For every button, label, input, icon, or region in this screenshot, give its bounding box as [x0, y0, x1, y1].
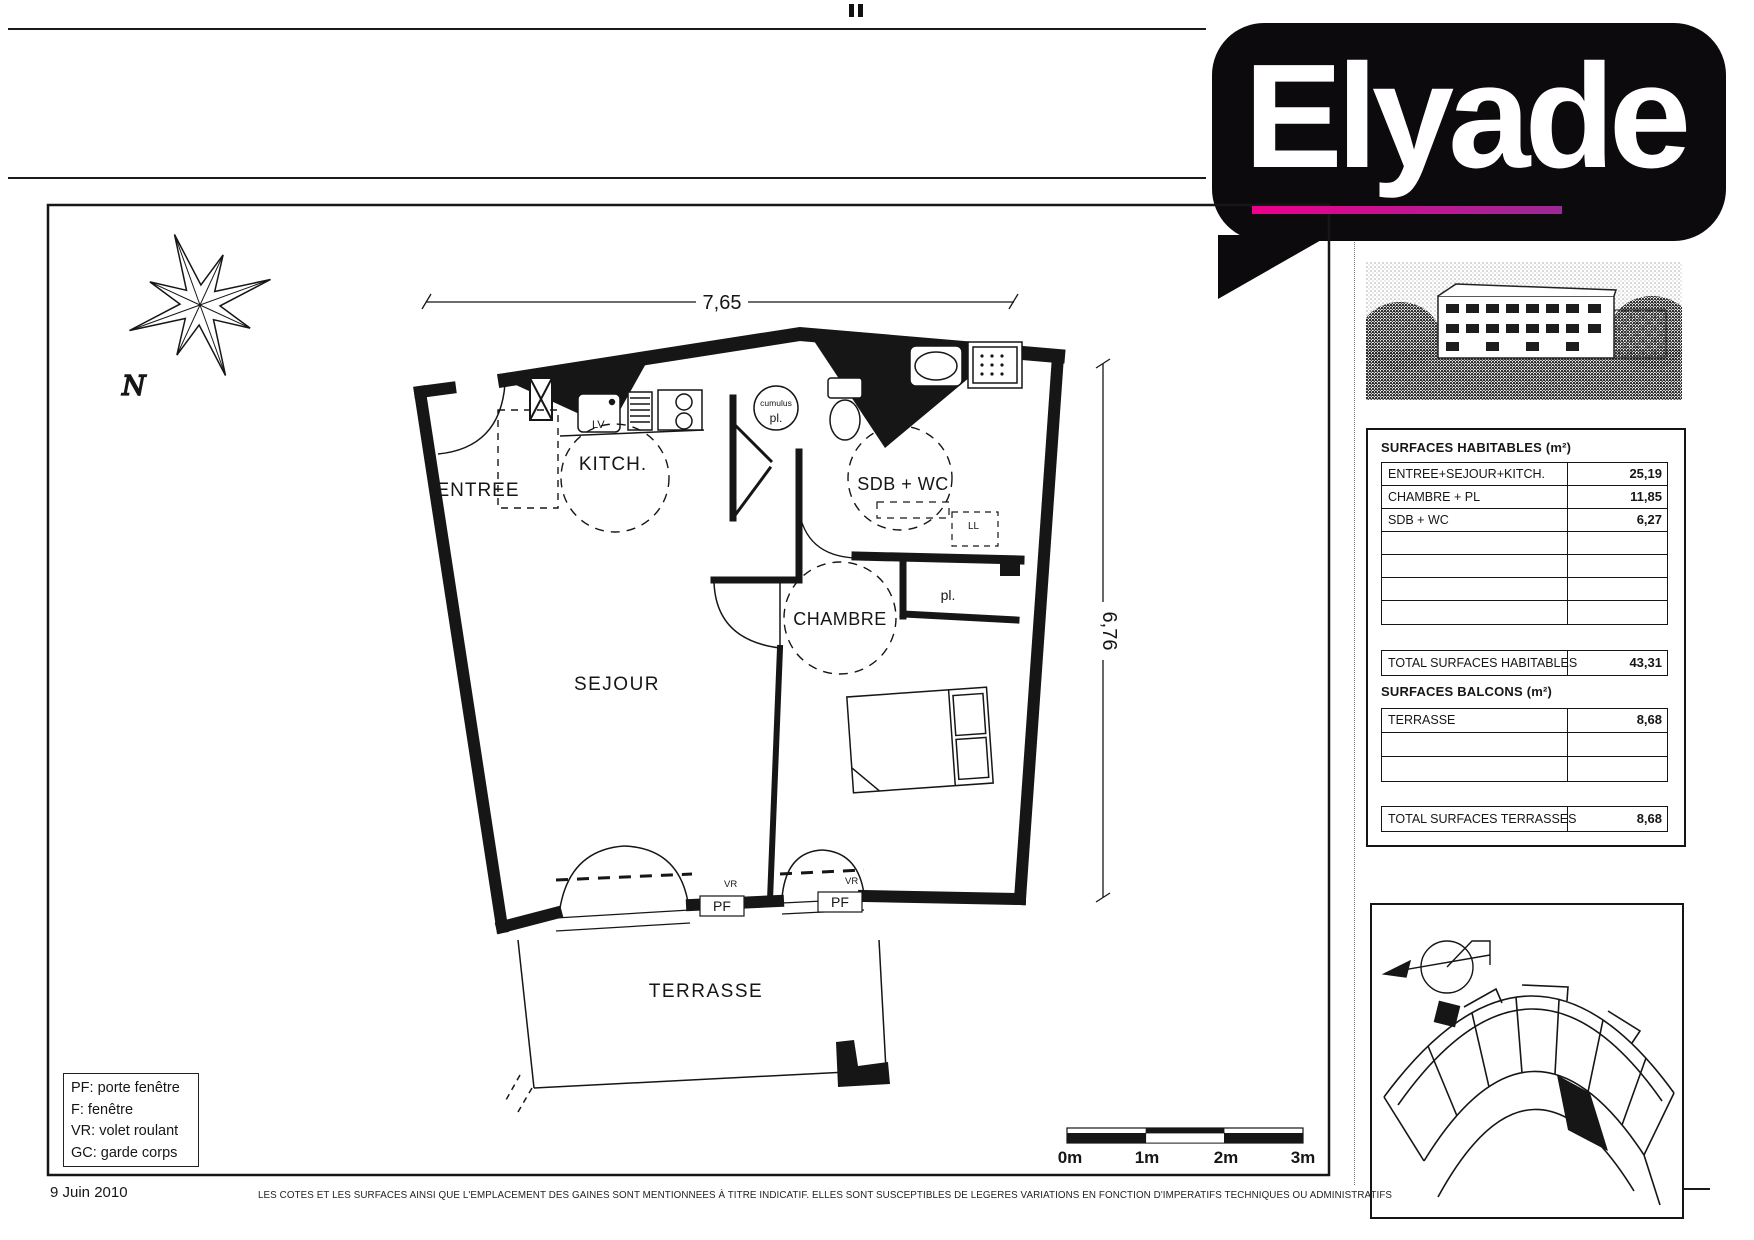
registration-mark	[849, 4, 854, 17]
room-label-sejour: SEJOUR	[574, 674, 660, 695]
floor-plan-drawing: N	[40, 195, 1335, 1185]
legend-line: GC: garde corps	[71, 1143, 198, 1165]
dim-right-label: 6,76	[1098, 612, 1120, 651]
surfaces-habitables-table: ENTREE+SEJOUR+KITCH. 25,19 CHAMBRE + PL …	[1381, 462, 1668, 625]
apartment-walls	[420, 334, 1058, 927]
disclaimer-text: LES COTES ET LES SURFACES AINSI QUE L'EM…	[258, 1190, 1348, 1201]
table-row-empty	[1382, 555, 1667, 578]
row-value: 11,85	[1568, 486, 1667, 508]
scale-label-1m: 1m	[1135, 1148, 1160, 1167]
duct-shaft-icon	[530, 378, 552, 420]
total-label: TOTAL SURFACES TERRASSES	[1382, 807, 1568, 831]
table-row-empty	[1382, 601, 1667, 624]
chambre-door-arc	[714, 582, 780, 648]
table-row-empty	[1382, 757, 1667, 781]
abbreviation-legend: PF: porte fenêtre F: fenêtre VR: volet r…	[63, 1073, 199, 1167]
surfaces-balcons-title: SURFACES BALCONS (m²)	[1381, 684, 1552, 699]
room-label-placard: pl.	[941, 587, 956, 603]
table-row-empty	[1382, 578, 1667, 601]
scale-label-0m: 0m	[1058, 1148, 1083, 1167]
label-ll: LL	[968, 521, 980, 532]
total-value: 43,31	[1568, 651, 1667, 675]
terrace-outline	[506, 940, 886, 1112]
table-row-empty	[1382, 733, 1667, 757]
scale-label-2m: 2m	[1214, 1148, 1239, 1167]
north-letter: N	[121, 371, 147, 402]
total-habitables-row: TOTAL SURFACES HABITABLES 43,31	[1381, 650, 1668, 676]
scale-label-3m: 3m	[1291, 1148, 1316, 1167]
label-cumulus-pl: pl.	[770, 411, 783, 425]
row-value: 8,68	[1568, 709, 1667, 732]
brand-name: Elyade	[1244, 36, 1714, 198]
row-value: 25,19	[1568, 463, 1667, 485]
dim-top-label: 7,65	[703, 292, 742, 314]
logo-accent-underline	[1252, 206, 1562, 214]
site-unit-highlight	[1557, 1075, 1608, 1151]
room-label-entree: ENTREE	[436, 480, 519, 501]
total-value: 8,68	[1568, 807, 1667, 831]
top-rule	[8, 28, 1206, 30]
legend-line: PF: porte fenêtre	[71, 1078, 198, 1100]
label-pf-left: PF	[713, 898, 731, 914]
terrace-doors	[556, 846, 864, 931]
room-label-chambre: CHAMBRE	[793, 609, 887, 629]
room-label-sdb: SDB + WC	[857, 474, 949, 494]
bed-icon	[847, 687, 993, 793]
header-rule	[8, 177, 1206, 179]
room-label-kitchen: KITCH.	[579, 454, 647, 475]
row-label: CHAMBRE + PL	[1382, 486, 1568, 508]
plan-date: 9 Juin 2010	[50, 1184, 128, 1201]
sdb-closet-dashed	[877, 502, 949, 518]
dimension-right: 6,76	[1090, 359, 1120, 902]
entrance-door-arc	[438, 384, 505, 454]
table-row: ENTREE+SEJOUR+KITCH. 25,19	[1382, 463, 1667, 486]
label-pf-right: PF	[831, 894, 849, 910]
compass-rose-icon: N	[121, 235, 271, 403]
label-cumulus: cumulus	[760, 398, 792, 408]
total-terrasses-row: TOTAL SURFACES TERRASSES 8,68	[1381, 806, 1668, 832]
scale-bar: 0m 1m 2m 3m	[1058, 1128, 1316, 1167]
row-label: TERRASSE	[1382, 709, 1568, 732]
table-row: CHAMBRE + PL 11,85	[1382, 486, 1667, 509]
surfaces-balcons-table: TERRASSE 8,68	[1381, 708, 1668, 782]
legend-line: F: fenêtre	[71, 1100, 198, 1122]
row-value: 6,27	[1568, 509, 1667, 531]
terrace-corner-mark	[836, 1040, 890, 1087]
registration-mark	[858, 4, 863, 17]
site-building-arc	[1384, 985, 1674, 1205]
kitchen-zone-circle	[561, 424, 669, 532]
row-label: SDB + WC	[1382, 509, 1568, 531]
kitchen-door-leaf	[735, 425, 772, 462]
site-plan-drawing	[1372, 905, 1682, 1217]
table-row: TERRASSE 8,68	[1382, 709, 1667, 733]
label-vr-left: VR	[724, 879, 737, 890]
wall-shading	[1000, 560, 1020, 576]
dimension-top: 7,65	[422, 288, 1018, 314]
table-row: SDB + WC 6,27	[1382, 509, 1667, 532]
room-label-terrasse: TERRASSE	[649, 981, 763, 1002]
total-label: TOTAL SURFACES HABITABLES	[1382, 651, 1568, 675]
fold-line	[1354, 240, 1355, 1185]
site-plan-panel	[1370, 903, 1684, 1219]
label-lv: LV	[592, 419, 605, 431]
surfaces-habitables-title: SURFACES HABITABLES (m²)	[1381, 440, 1571, 455]
row-label: ENTREE+SEJOUR+KITCH.	[1382, 463, 1568, 485]
site-north-arrow	[1384, 941, 1490, 993]
table-row-empty	[1382, 532, 1667, 555]
building-photo	[1366, 262, 1682, 400]
sdb-door-arc	[798, 502, 856, 558]
label-vr-right: VR	[845, 876, 858, 887]
legend-line: VR: volet roulant	[71, 1121, 198, 1143]
